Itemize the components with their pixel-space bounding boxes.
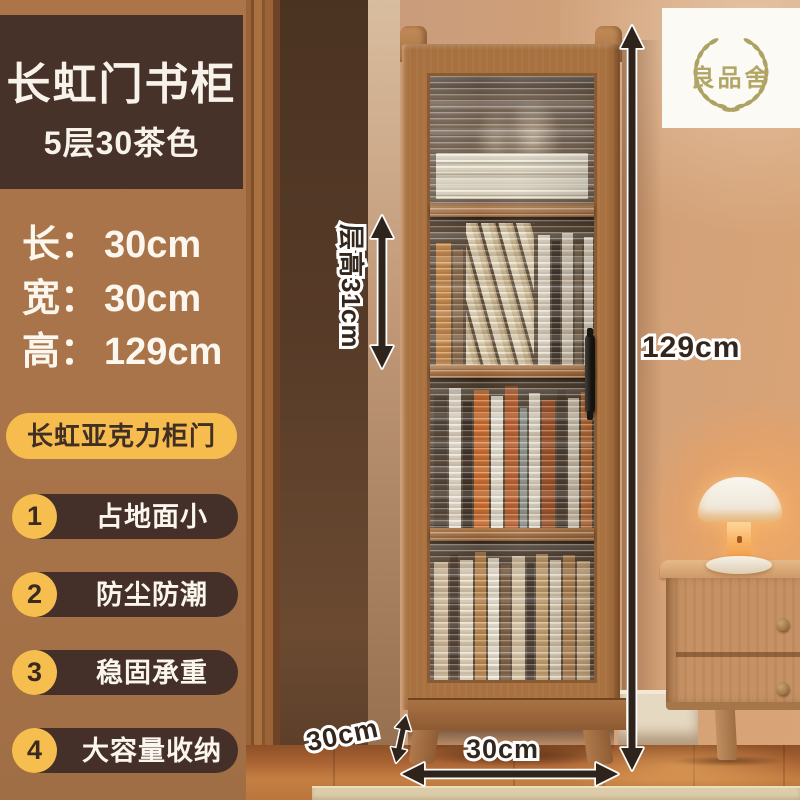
feature-text: 防尘防潮 xyxy=(72,572,232,617)
glass-door xyxy=(430,76,594,680)
height-arrow-icon xyxy=(614,22,650,774)
dimension-value: 30cm xyxy=(104,278,201,320)
dimension-row-width: 宽：30cm xyxy=(22,276,201,322)
dark-doorway xyxy=(280,0,368,748)
shelf-board xyxy=(430,365,594,378)
drawer-knob xyxy=(776,682,789,695)
shelf-height-label: 层高31cm xyxy=(334,224,371,374)
shelf-compartment-1 xyxy=(430,76,594,204)
book-spine xyxy=(575,245,582,365)
product-banner: 129cm 层高31cm 30cm 30cm 长虹门书柜 5层30茶色 长：30… xyxy=(0,0,800,800)
feature-badge: 长虹亚克力柜门 xyxy=(6,413,237,459)
brand-logo-card: 良品舍 xyxy=(662,8,800,128)
feature-item-3: 3 稳固承重 xyxy=(12,650,238,695)
shelf-board xyxy=(430,204,594,217)
nightstand-leg xyxy=(714,702,737,760)
stacked-books xyxy=(436,153,588,199)
door-frame-moulding xyxy=(245,0,280,748)
feature-text: 大容量收纳 xyxy=(72,728,232,773)
table-lamp xyxy=(694,470,786,580)
table-lamp-dome xyxy=(698,477,782,522)
shelf-compartment-4 xyxy=(430,541,594,680)
bottom-width-label: 30cm xyxy=(466,734,539,765)
shelf-compartment-2 xyxy=(430,217,594,365)
feature-number: 3 xyxy=(12,650,57,695)
book-spine xyxy=(453,249,463,365)
dimension-label: 高： xyxy=(22,331,98,373)
dimension-value: 30cm xyxy=(104,224,201,266)
product-title: 长虹门书柜 xyxy=(0,48,243,112)
table-lamp-base xyxy=(706,556,772,574)
shelf-compartment-3 xyxy=(430,378,594,528)
nightstand-drawers xyxy=(666,578,800,710)
feature-number: 2 xyxy=(12,572,57,617)
book-spine xyxy=(562,233,573,365)
bookcase-bottom-rail xyxy=(408,698,626,730)
table-lamp-switch xyxy=(737,536,742,543)
leaning-books xyxy=(466,223,534,365)
shelf-board xyxy=(430,528,594,541)
dimension-row-length: 长：30cm xyxy=(22,222,201,268)
dimension-value: 129cm xyxy=(104,331,222,373)
product-title-badge: 长虹门书柜 5层30茶色 xyxy=(0,15,243,189)
feature-item-1: 1 占地面小 xyxy=(12,494,238,539)
door-handle xyxy=(585,334,595,414)
nightstand xyxy=(660,558,800,770)
dimension-row-height: 高：129cm xyxy=(22,329,222,375)
dimension-label: 长： xyxy=(22,224,98,266)
book-spine xyxy=(552,241,560,365)
feature-text: 占地面小 xyxy=(72,494,232,539)
feature-item-2: 2 防尘防潮 xyxy=(12,572,238,617)
product-subtitle: 5层30茶色 xyxy=(0,118,243,164)
dimension-label: 宽： xyxy=(22,278,98,320)
feature-number: 1 xyxy=(12,494,57,539)
drawer-divider xyxy=(676,652,800,657)
feature-item-4: 4 大容量收纳 xyxy=(12,728,238,773)
feature-text: 稳固承重 xyxy=(72,650,232,695)
drawer-knob xyxy=(776,618,789,631)
feature-number: 4 xyxy=(12,728,57,773)
book-spine xyxy=(436,243,451,365)
bookcase xyxy=(396,26,626,766)
book-spine xyxy=(538,235,550,365)
brand-name: 良品舍 xyxy=(662,58,800,93)
info-panel: 长虹门书柜 5层30茶色 长：30cm 宽：30cm 高：129cm 长虹亚克力… xyxy=(0,0,246,800)
total-height-label: 129cm xyxy=(642,331,740,365)
